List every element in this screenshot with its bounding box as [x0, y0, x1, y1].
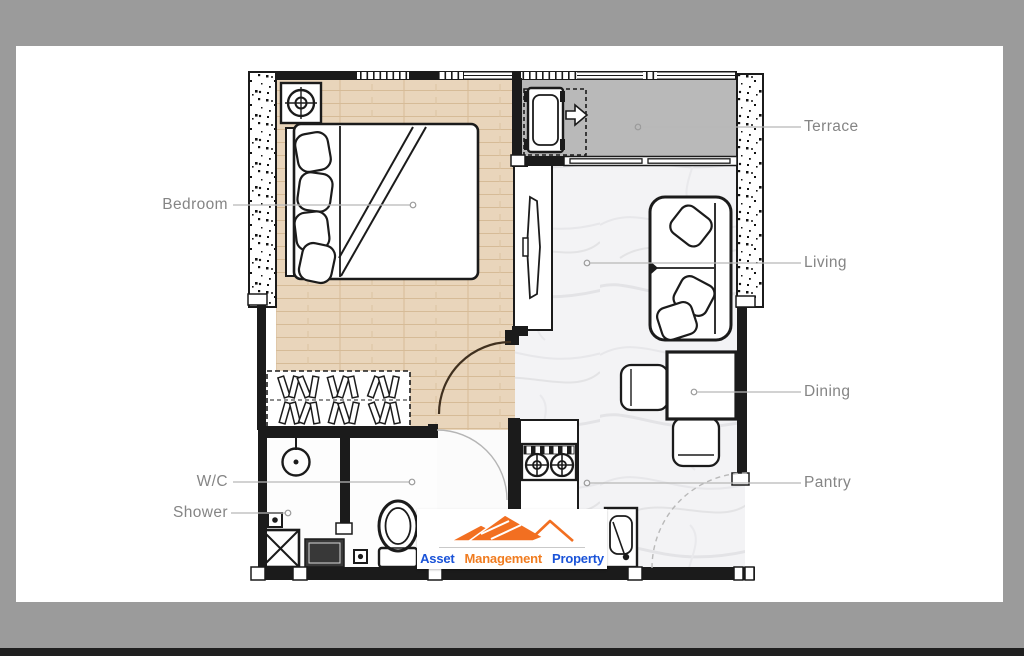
wardrobe [267, 371, 410, 428]
screenshot-background: Bedroom W/C Shower Terrace Living Dining… [0, 0, 1024, 656]
tv-stand [523, 238, 528, 256]
floor-drain [268, 513, 282, 527]
logo-divider [439, 547, 585, 548]
logo-mountain-icon [447, 512, 577, 544]
room-label-pantry: Pantry [804, 474, 851, 492]
dining-chair-bottom [673, 418, 719, 466]
room-label-living: Living [804, 254, 847, 272]
stove-burner [526, 454, 548, 476]
shaft-x-box [262, 530, 299, 567]
vanity-counter [305, 539, 344, 567]
watermark-logo: Asset Management Property [417, 509, 607, 569]
dining-chair-left [621, 365, 668, 410]
logo-wordmark: Asset Management Property [417, 551, 607, 566]
room-label-bedroom: Bedroom [100, 196, 228, 214]
logo-word-property: Property [552, 551, 604, 566]
toilet [379, 501, 417, 567]
tv [527, 197, 540, 298]
bottom-black-bar [0, 648, 1024, 656]
room-label-shower: Shower [100, 504, 228, 522]
tv-console [514, 163, 552, 330]
room-label-wc: W/C [100, 473, 228, 491]
kitchen-sink [605, 508, 637, 567]
exterior-wall-left [249, 72, 276, 307]
exterior-wall-right [737, 74, 763, 307]
stove-burner [551, 454, 573, 476]
sofa [650, 197, 731, 342]
sliding-window-band [515, 156, 737, 166]
room-label-terrace: Terrace [804, 118, 858, 136]
floor-drain [354, 550, 367, 563]
dining-table [667, 352, 736, 419]
logo-word-management: Management [465, 551, 542, 566]
room-label-dining: Dining [804, 383, 850, 401]
logo-word-asset: Asset [420, 551, 454, 566]
ac-unit-symbol [281, 83, 321, 123]
